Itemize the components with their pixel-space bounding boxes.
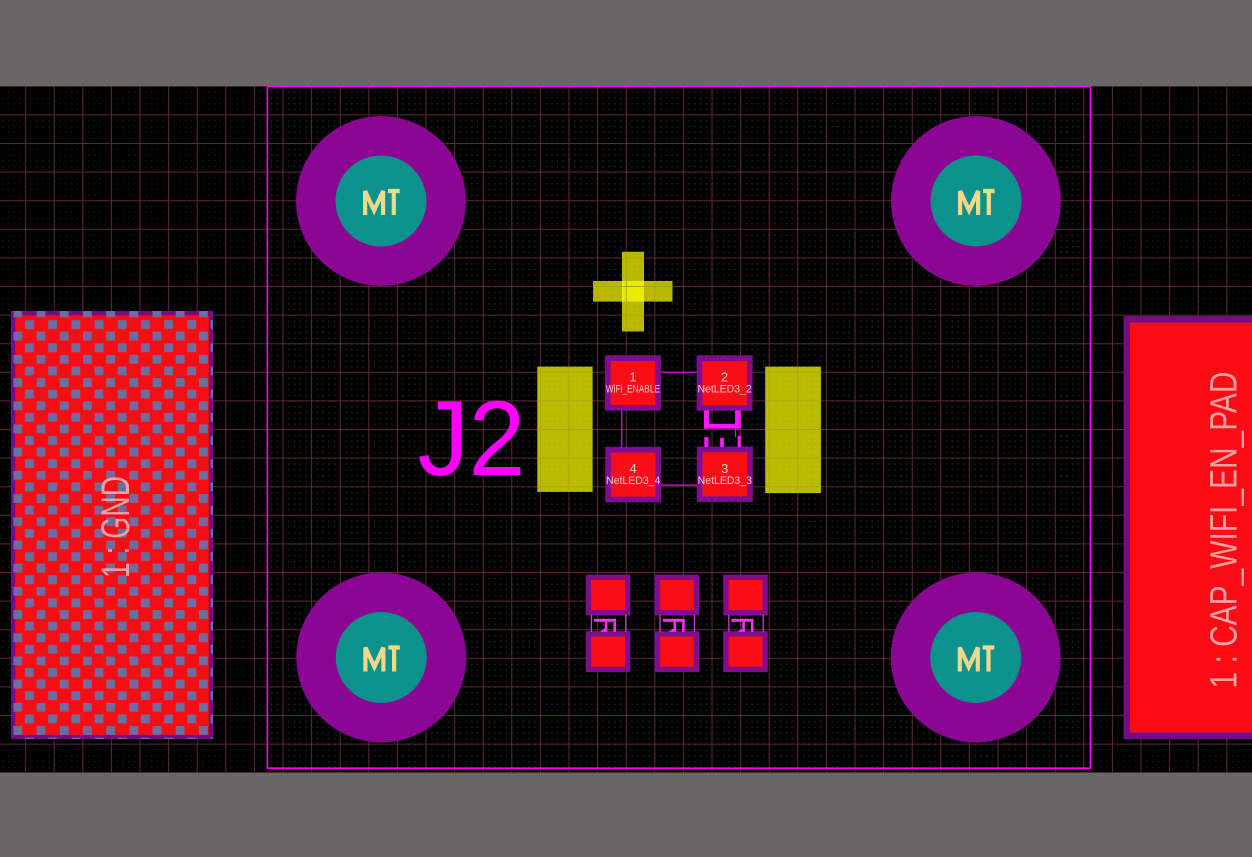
svg-text:1: 1 — [629, 370, 636, 385]
svg-text:J2: J2 — [418, 378, 526, 498]
svg-text:NetLED3_4: NetLED3_4 — [606, 475, 660, 487]
svg-text:NetLED3_3: NetLED3_3 — [698, 475, 752, 487]
svg-text:NetLED3_2: NetLED3_2 — [697, 384, 751, 396]
svg-text:1 : GND: 1 : GND — [94, 476, 138, 578]
svg-text:1 : CAP_WIFI_EN_PAD: 1 : CAP_WIFI_EN_PAD — [1204, 372, 1246, 689]
svg-text:2: 2 — [721, 370, 728, 385]
svg-text:WiFi_ENABLE: WiFi_ENABLE — [606, 384, 661, 396]
svg-text:4: 4 — [630, 461, 637, 476]
svg-text:3: 3 — [721, 461, 728, 476]
